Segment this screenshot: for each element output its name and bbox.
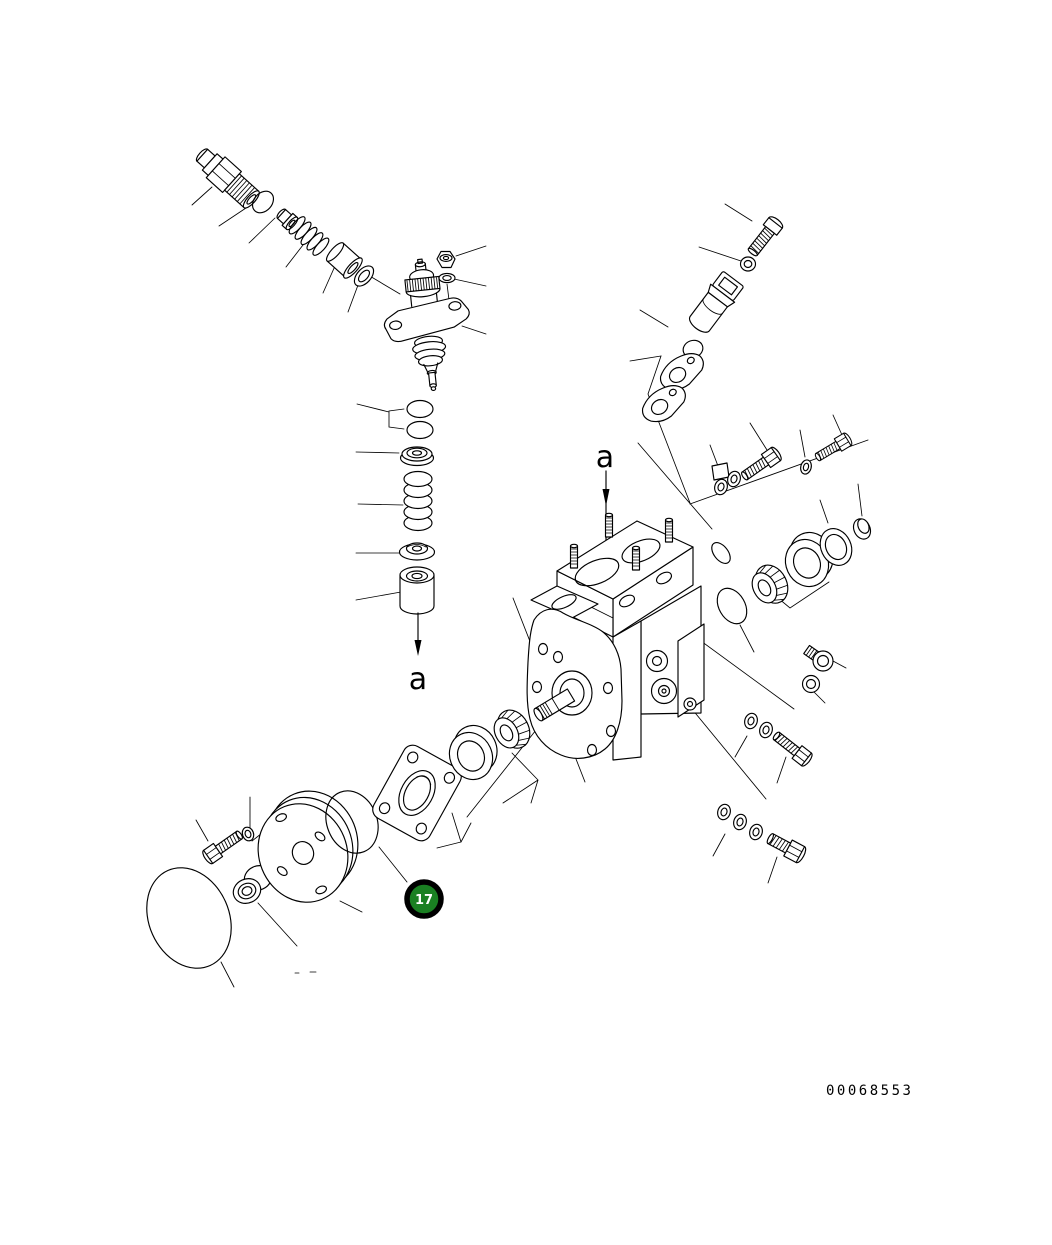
front-gasket-ellipse (131, 854, 246, 982)
eye-joint (712, 463, 742, 496)
stud-4 (666, 518, 673, 542)
callout-17[interactable]: 17 (407, 882, 441, 916)
priming-pump-assembly (378, 255, 477, 395)
washer-pair-2 (758, 721, 775, 740)
stud-3 (633, 546, 640, 570)
hex-plug-bottom (764, 830, 807, 864)
tappet (400, 567, 434, 614)
cover-bolt (201, 827, 246, 865)
eye-joint-bolt (738, 446, 783, 484)
spacer-collar-rear (850, 516, 873, 542)
stud-2 (606, 513, 613, 537)
view-arrow-a-bottom: a (409, 613, 427, 697)
reference-dashes (295, 972, 316, 973)
figure-number: 00068553 (826, 1083, 913, 1099)
spring-seat-upper (401, 447, 434, 466)
socket-plug (804, 645, 833, 671)
o-ring-large-right (711, 583, 753, 629)
adjust-shims (407, 401, 433, 439)
plunger-spring (404, 472, 432, 531)
o-ring-small-right (708, 539, 734, 567)
washer-trio-2 (732, 813, 749, 832)
parts-diagram-page: a a (0, 0, 1052, 1245)
washer-priming-pump (439, 273, 455, 282)
spring-seat-lower (400, 543, 435, 560)
banjo-bolt (813, 432, 854, 464)
washer-pair-1 (743, 712, 760, 731)
stud-1 (571, 544, 578, 568)
banjo-washer (799, 459, 813, 476)
plug-screw (274, 206, 299, 231)
side-bolt (770, 728, 814, 767)
view-label-a-top: a (596, 440, 614, 475)
view-label-a-bottom: a (409, 662, 427, 697)
callout-17-number: 17 (415, 893, 433, 908)
sensor-bolt (745, 215, 785, 259)
pump-housing (527, 513, 704, 760)
plug-washer (803, 676, 820, 693)
sensor-washer (741, 257, 756, 271)
nut-priming-pump (437, 252, 455, 268)
front-cover-plate (240, 777, 375, 915)
exploded-diagram-canvas: a a (0, 0, 1052, 1245)
washer-trio-1 (716, 803, 733, 822)
washer-trio-3 (748, 823, 765, 842)
sensor-solenoid (684, 270, 745, 338)
